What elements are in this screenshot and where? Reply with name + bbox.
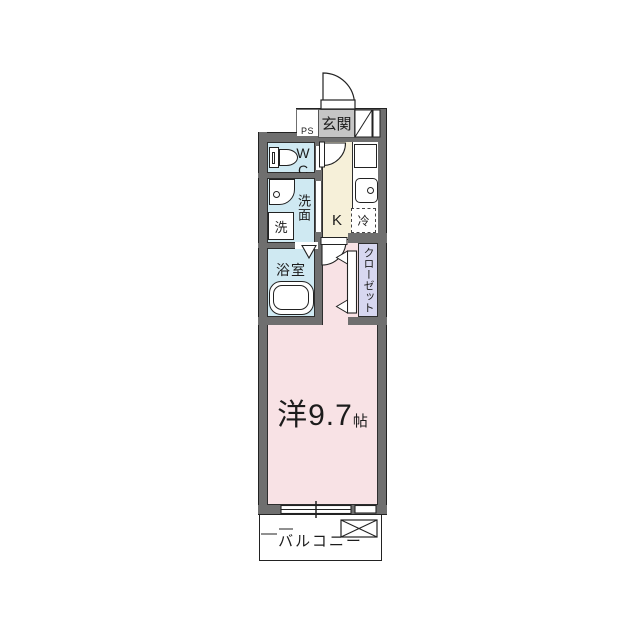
washroom-door [315, 181, 322, 232]
bathtub-inner [273, 285, 309, 310]
refrigerator-label: 冷 [357, 212, 369, 229]
washbasin-drain [273, 191, 280, 198]
washing-machine-label: 洗 [274, 217, 287, 236]
wall-right [378, 108, 387, 515]
hall-floor [322, 240, 358, 325]
wall-washroom-bath [258, 243, 322, 248]
bathtub [269, 281, 314, 315]
wall-bath-right [315, 243, 322, 325]
wall-wc-washroom [258, 173, 322, 178]
toilet-tank [269, 147, 279, 168]
kitchen-counter [354, 144, 377, 168]
closet-label: クローゼット [362, 247, 373, 313]
balcony-label: バルコニー [259, 530, 382, 551]
washroom-label: 洗面 [297, 194, 310, 222]
wall-closet-bottom [348, 317, 387, 325]
floor-plan: バルコニー WC 洗面 浴室 K クローゼット 洋9.7 帖 洗 冷 [0, 0, 640, 640]
kitchen-label: K [322, 212, 352, 229]
entrance: 玄関 [318, 109, 355, 138]
pipe-space-label: PS [301, 126, 314, 136]
wall-bath-bottom [258, 317, 322, 325]
kitchen-sink [355, 178, 378, 203]
toilet-tank-inner [272, 152, 275, 164]
refrigerator-space: 冷 [351, 208, 376, 233]
entrance-door-arc [323, 73, 355, 105]
bathroom-label: 浴室 [267, 260, 315, 280]
main-room-size: 洋9.7 [277, 390, 353, 434]
entrance-label: 玄関 [321, 113, 351, 134]
wall-bottom [258, 505, 387, 515]
wall-kitchen-closet [348, 233, 387, 243]
washing-machine-pan: 洗 [268, 212, 294, 240]
main-room-label: 洋9.7 帖 [267, 390, 378, 434]
main-room-unit: 帖 [353, 410, 368, 434]
pipe-space: PS [297, 110, 318, 136]
faucet-icon [367, 187, 374, 194]
wc-door [315, 146, 322, 170]
